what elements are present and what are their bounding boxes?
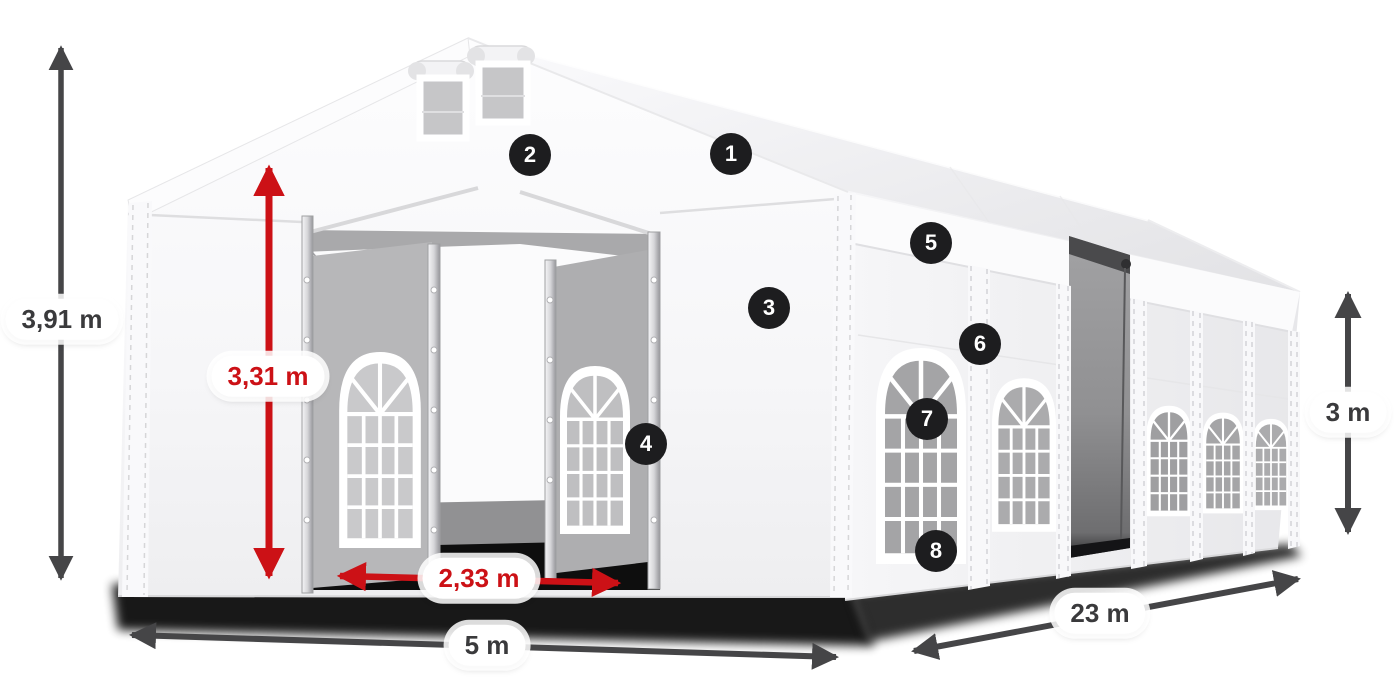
front-entrance — [302, 188, 660, 593]
feature-badge-5[interactable]: 5 — [910, 222, 952, 264]
feature-badge-4[interactable]: 4 — [625, 423, 667, 465]
dimension-label-inner-height: 3,31 m — [212, 356, 325, 397]
side-window-2 — [992, 378, 1056, 532]
entrance-left-door — [312, 242, 432, 588]
tent-illustration — [0, 0, 1400, 700]
feature-badge-7[interactable]: 7 — [906, 398, 948, 440]
roof-vent-right — [467, 46, 535, 122]
dimension-label-total-height: 3,91 m — [6, 299, 119, 340]
feature-badge-8[interactable]: 8 — [915, 530, 957, 572]
side-window-5 — [1252, 419, 1290, 510]
side-window-3 — [1146, 406, 1192, 516]
roof-vent-left — [408, 61, 474, 138]
dimension-label-side-length: 23 m — [1054, 593, 1145, 634]
feature-badge-2[interactable]: 2 — [509, 134, 551, 176]
dimension-label-front-width: 5 m — [449, 625, 526, 666]
dimension-label-door-width: 2,33 m — [423, 558, 536, 599]
entrance-right-door — [548, 250, 648, 574]
side-doorway — [1069, 236, 1131, 558]
side-window-1 — [876, 348, 966, 564]
feature-badge-1[interactable]: 1 — [710, 133, 752, 175]
feature-badge-3[interactable]: 3 — [748, 287, 790, 329]
side-window-4 — [1202, 413, 1244, 514]
dimension-label-wall-height: 3 m — [1310, 392, 1387, 433]
tent-dimension-diagram: 3,91 m 3,31 m 2,33 m 5 m 23 m 3 m 1 2 3 … — [0, 0, 1400, 700]
feature-badge-6[interactable]: 6 — [959, 323, 1001, 365]
